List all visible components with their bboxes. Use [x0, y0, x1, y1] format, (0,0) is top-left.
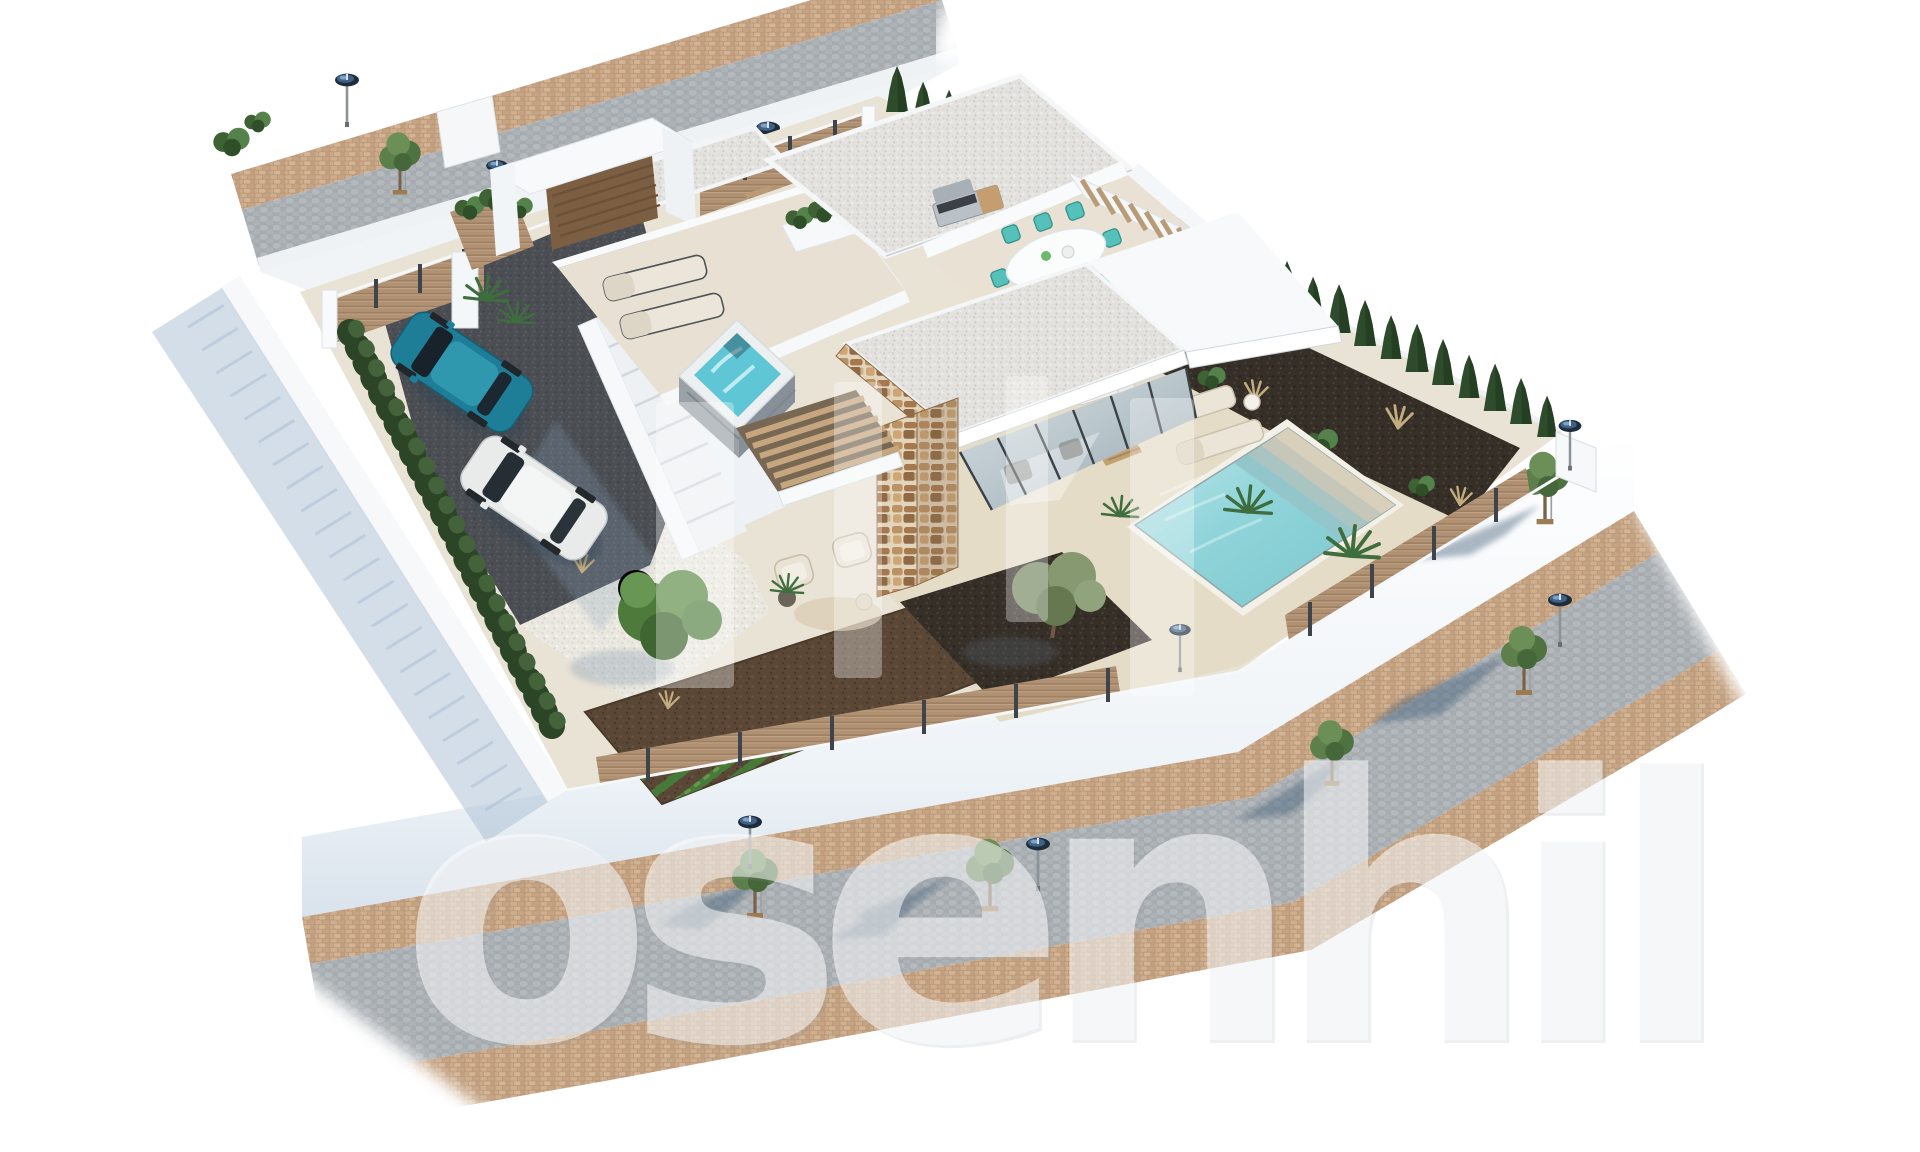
render-canvas: osenhil osenhil [0, 0, 1920, 1152]
watermark-text: osenhil [400, 698, 1740, 1127]
stone-feature-wall [877, 398, 958, 597]
villa-aerial-render: osenhil osenhil [0, 0, 1920, 1152]
side-table [1244, 394, 1260, 410]
street-fade [945, 8, 960, 62]
gate-pillar [662, 127, 696, 226]
